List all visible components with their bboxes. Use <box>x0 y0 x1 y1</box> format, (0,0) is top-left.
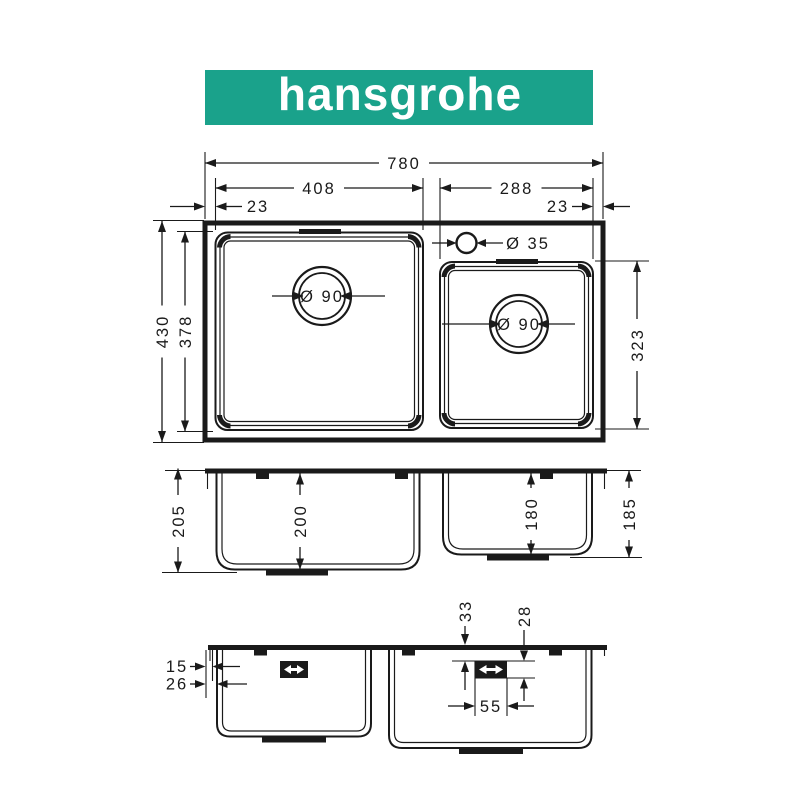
fastening-clip-right <box>475 661 507 678</box>
mounting-tab <box>402 650 415 656</box>
svg-text:780: 780 <box>387 155 421 173</box>
svg-text:26: 26 <box>166 676 188 694</box>
drain-boss <box>266 570 328 576</box>
mounting-tab <box>256 474 269 480</box>
sink-dimension-drawing: hansgrohe <box>0 0 800 800</box>
drain-boss <box>459 748 523 754</box>
mounting-tab <box>549 650 562 656</box>
svg-text:378: 378 <box>177 315 195 349</box>
svg-text:28: 28 <box>516 605 534 627</box>
tap-hole-label: Ø 35 <box>506 235 550 253</box>
svg-text:200: 200 <box>292 504 310 538</box>
drain-boss <box>262 737 326 743</box>
drain-boss <box>487 555 549 561</box>
mounting-tab <box>254 650 267 656</box>
right-drain-label: Ø 90 <box>497 316 541 334</box>
svg-text:33: 33 <box>457 600 475 622</box>
svg-text:408: 408 <box>302 180 336 198</box>
svg-text:323: 323 <box>629 328 647 362</box>
svg-text:23: 23 <box>547 198 569 216</box>
mounting-tab <box>540 474 553 480</box>
svg-text:180: 180 <box>523 497 541 531</box>
svg-text:55: 55 <box>480 698 502 716</box>
svg-text:185: 185 <box>621 497 639 531</box>
svg-text:15: 15 <box>166 658 188 676</box>
svg-text:23: 23 <box>247 198 269 216</box>
right-bowl-rim-mark <box>496 259 538 264</box>
mounting-tab <box>395 474 408 480</box>
technical-drawing-page: hansgrohe <box>0 0 800 800</box>
left-bowl-rim-mark <box>299 229 341 234</box>
svg-text:430: 430 <box>154 315 172 349</box>
left-drain-label: Ø 90 <box>300 288 344 306</box>
svg-text:288: 288 <box>500 180 534 198</box>
brand-logo: hansgrohe <box>205 68 593 125</box>
svg-text:205: 205 <box>170 504 188 538</box>
logo-wordmark: hansgrohe <box>278 68 522 120</box>
fastening-clip-left <box>280 661 308 678</box>
